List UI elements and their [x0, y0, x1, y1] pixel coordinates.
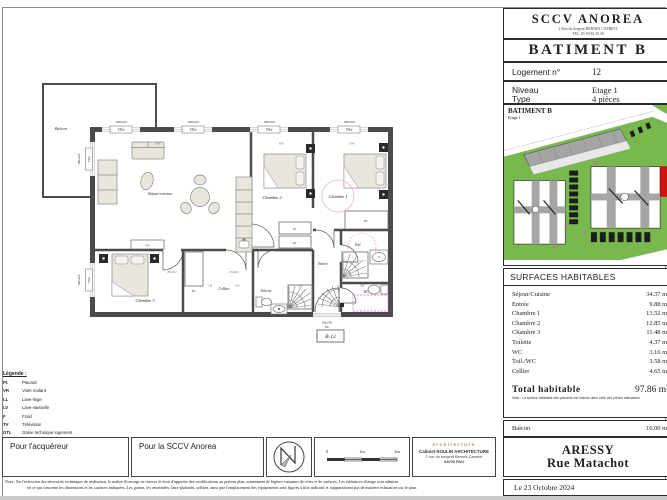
signature-box-seller: Pour la SCCV Anorea	[131, 437, 264, 477]
site-plan-title: BATIMENT B	[508, 107, 552, 115]
closet-label: Pl.	[191, 289, 196, 293]
room-label-toil: Toil.	[355, 243, 362, 247]
north-arrow-box	[266, 437, 312, 477]
svg-text:697: 697	[156, 142, 161, 146]
company-tel: TEL. 05 59 84 30 30	[504, 32, 667, 37]
niveau-type-row: Niveau Etage 1 Type 4 pièces	[503, 81, 667, 104]
company-header: SCCV ANOREA 2 Rue du Sergent BERNES CAMB…	[503, 8, 667, 39]
svg-text:1m: 1m	[359, 449, 365, 454]
north-arrow-icon	[271, 439, 307, 475]
surfaces-title: SURFACES HABITABLES	[504, 269, 667, 286]
svg-text:380: 380	[279, 142, 284, 146]
legend-item: LVLave-vaisselle	[3, 404, 133, 412]
site-plan-subtitle: Etage 1	[508, 115, 552, 120]
room-label-toilette: Toilette	[261, 289, 272, 293]
svg-text:83x204: 83x204	[229, 270, 239, 274]
legend-title: Légende :	[3, 371, 133, 377]
cabinet	[98, 160, 117, 204]
legend: Légende : Pl.Placard VRVolet roulant LLL…	[3, 371, 133, 438]
signature-label-seller: Pour la SCCV Anorea	[132, 438, 263, 451]
balcony-label: Balcon	[55, 126, 67, 131]
kitchen-unit	[236, 177, 252, 252]
architect-stamp: architecture Cabinet ROULIN ARCHITECTURE…	[412, 437, 496, 477]
unit-ref: B-12	[317, 330, 344, 342]
surface-row: Chambre 212.85 m²	[504, 319, 667, 329]
surface-row: Toil./WC3.58 m²	[504, 357, 667, 367]
closet-label: Pl.	[363, 219, 368, 223]
signature-box-buyer: Pour l'acquéreur	[2, 437, 129, 477]
nota-disclaimer: Nota : En l'exécution des nécessités tec…	[5, 479, 494, 490]
room-label-chambre2: Chambre 2	[262, 195, 282, 200]
svg-text:VRe: VRe	[190, 128, 197, 132]
svg-text:VRe: VRe	[346, 128, 353, 132]
svg-text:B-12: B-12	[325, 334, 336, 340]
room-label-cellier: Cellier	[218, 286, 230, 291]
nota-line2: en ce qui concerne les dimensions et les…	[5, 485, 494, 491]
total-value: 97.86 m²	[635, 385, 667, 395]
svg-text:180x220: 180x220	[343, 120, 355, 124]
site-plan	[504, 105, 667, 265]
svg-text:180x220: 180x220	[187, 120, 199, 124]
closet-label: Pl.	[292, 241, 297, 245]
surface-row: WC3.16 m²	[504, 348, 667, 358]
svg-text:VRe: VRe	[118, 128, 125, 132]
svg-text:180x220: 180x220	[263, 120, 275, 124]
tv-unit: TV	[131, 240, 164, 249]
total-row: Total habitable 97.86 m²	[504, 385, 667, 395]
architect-city: 64000 PAU	[413, 459, 495, 464]
svg-text:246: 246	[208, 284, 213, 288]
room-label-entree: Entrée	[317, 262, 328, 266]
balcon-value: 16.00 m²	[646, 421, 667, 436]
surface-row: Chambre 311.48 m²	[504, 328, 667, 338]
svg-text:VRe: VRe	[87, 276, 91, 283]
svg-text:180x220: 180x220	[77, 153, 81, 164]
project-street: Rue Matachot	[504, 457, 667, 470]
surface-row: Toilette4.37 m²	[504, 338, 667, 348]
company-name: SCCV ANOREA	[504, 12, 667, 27]
floor-plan: Balcon 180x220 VRe 180x220 VRe	[0, 0, 497, 375]
room-label-chambre3: Chambre 3	[135, 298, 154, 303]
svg-text:120: 120	[298, 284, 303, 288]
date-value: Le 23 Octobre 2024	[504, 480, 667, 495]
balcon-label: Balcon	[512, 421, 530, 436]
legend-item: FFroid	[3, 413, 133, 421]
surface-row: Séjour/Cuisine34.37 m²	[504, 290, 667, 300]
legend-item: TVTélévision	[3, 421, 133, 429]
page-edge	[0, 496, 667, 500]
building-name: BATIMENT B	[504, 40, 667, 61]
svg-text:VRe: VRe	[87, 155, 91, 162]
logement-row: Logement n° 12	[503, 62, 667, 81]
room-label-sejour: Séjour/cuisine	[148, 191, 173, 196]
svg-text:0: 0	[326, 449, 329, 454]
legend-item: VRVolet roulant	[3, 387, 133, 395]
svg-text:90x220: 90x220	[322, 321, 332, 325]
surfaces-section: SURFACES HABITABLES Séjour/Cuisine34.37 …	[503, 268, 667, 418]
building-header: BATIMENT B	[503, 39, 667, 62]
signature-label-buyer: Pour l'acquéreur	[3, 438, 128, 451]
total-note: Nota : La surface habitable des placards…	[504, 396, 667, 400]
svg-text:180x220: 180x220	[77, 274, 81, 285]
type-label: Type	[512, 94, 530, 104]
architect-logo: architecture	[413, 442, 495, 447]
svg-text:PE: PE	[324, 325, 329, 329]
surface-row: Cellier4.65 m²	[504, 367, 667, 377]
total-label: Total habitable	[512, 385, 581, 395]
logement-value: 12	[592, 67, 601, 77]
site-plan-label: BATIMENT B Etage 1	[508, 107, 552, 120]
room-label-wc: WC	[363, 290, 369, 294]
svg-text:2m: 2m	[394, 449, 400, 454]
svg-text:150: 150	[235, 284, 240, 288]
legend-item: LLLave-linge	[3, 396, 133, 404]
surface-row: Entrée9.88 m²	[504, 300, 667, 310]
scale-bar-box: 0 1m 2m	[314, 437, 410, 477]
type-value: 4 pièces	[592, 94, 620, 104]
surface-row: Chambre 113.52 m²	[504, 309, 667, 319]
room-label-chambre1: Chambre 1	[328, 194, 347, 199]
svg-text:304: 304	[350, 142, 355, 146]
balcon-row: Balcon16.00 m²	[503, 420, 667, 437]
svg-text:VRe: VRe	[266, 128, 273, 132]
legend-item: Pl.Placard	[3, 379, 133, 387]
project-address-section: ARESSY Rue Matachot	[503, 437, 667, 477]
scale-bar: 0 1m 2m	[322, 446, 402, 468]
svg-text:83x204: 83x204	[167, 270, 177, 274]
svg-text:TV: TV	[145, 244, 150, 248]
date-section: Le 23 Octobre 2024	[503, 479, 667, 496]
closet-label: Pl.	[292, 227, 297, 231]
svg-text:208: 208	[360, 284, 365, 288]
site-plan-section: BATIMENT B Etage 1	[503, 104, 667, 266]
logement-label: Logement n°	[512, 67, 560, 77]
svg-text:180x220: 180x220	[115, 120, 127, 124]
